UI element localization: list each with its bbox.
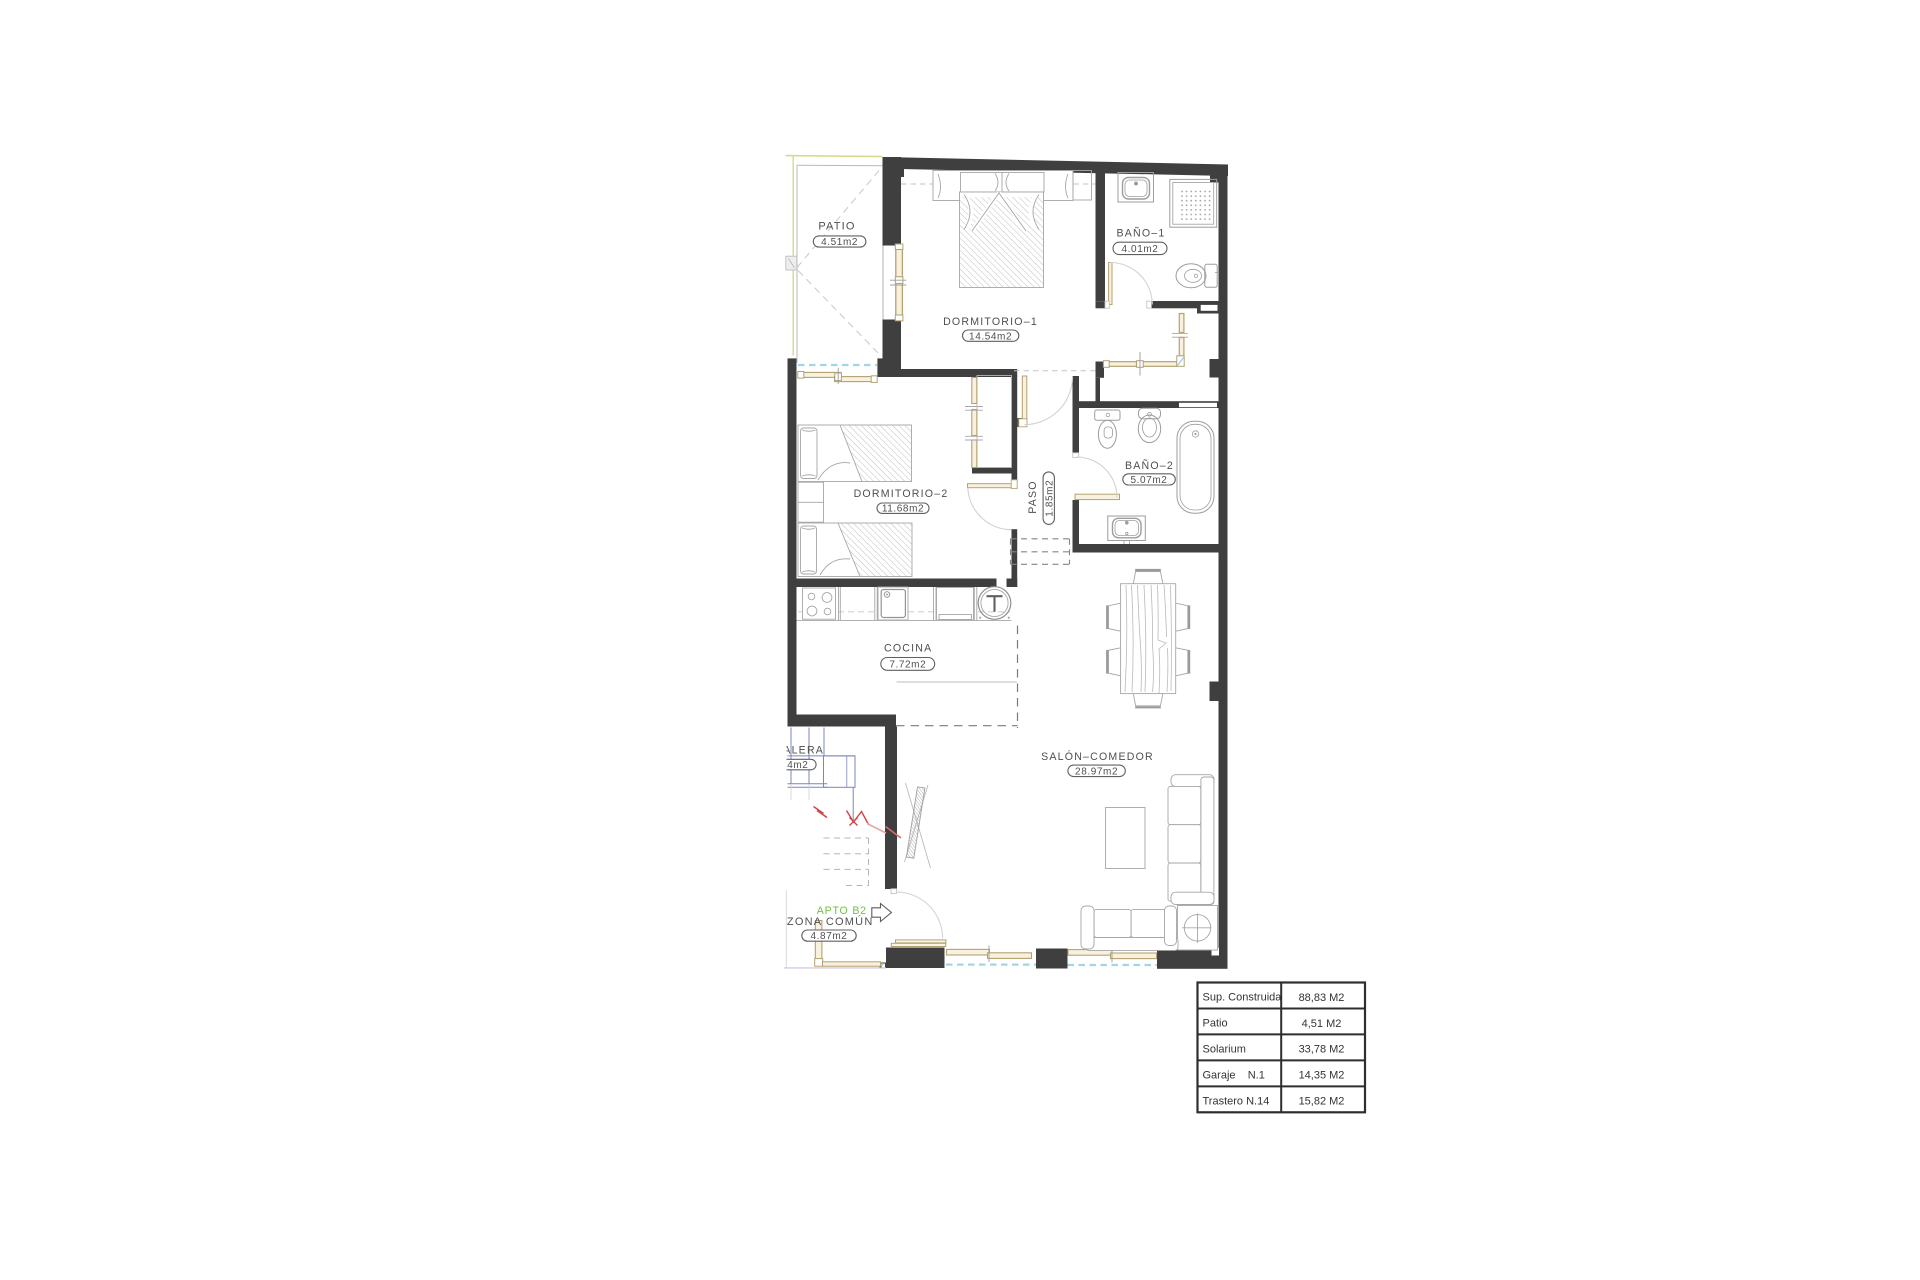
svg-text:1.85m2: 1.85m2: [1044, 480, 1055, 517]
svg-text:SALÓN–COMEDOR: SALÓN–COMEDOR: [1041, 750, 1154, 763]
svg-text:14,35 M2: 14,35 M2: [1299, 1069, 1345, 1081]
svg-text:Garaje N.1: Garaje N.1: [1203, 1069, 1265, 1081]
svg-text:BAÑO–2: BAÑO–2: [1125, 459, 1174, 472]
svg-text:4.01m2: 4.01m2: [1122, 244, 1159, 255]
svg-text:88,83 M2: 88,83 M2: [1299, 992, 1345, 1004]
svg-text:4.87m2: 4.87m2: [811, 931, 848, 942]
svg-text:PASO: PASO: [1027, 480, 1039, 513]
svg-text:Sup. Construida: Sup. Construida: [1203, 991, 1283, 1003]
svg-text:COCINA: COCINA: [884, 642, 932, 654]
svg-text:33,78 M2: 33,78 M2: [1299, 1043, 1345, 1055]
svg-text:Solarium: Solarium: [1203, 1043, 1246, 1055]
svg-text:DORMITORIO–1: DORMITORIO–1: [943, 316, 1038, 328]
svg-text:BAÑO–1: BAÑO–1: [1116, 227, 1165, 240]
svg-text:ZONA COMÚN: ZONA COMÚN: [787, 915, 874, 928]
svg-text:DORMITORIO–2: DORMITORIO–2: [854, 488, 949, 500]
svg-text:28.97m2: 28.97m2: [1075, 766, 1118, 777]
svg-text:4.51m2: 4.51m2: [821, 237, 858, 248]
svg-text:Trastero N.14: Trastero N.14: [1203, 1095, 1270, 1107]
svg-text:Patio: Patio: [1203, 1017, 1228, 1029]
svg-text:4,51 M2: 4,51 M2: [1302, 1018, 1342, 1030]
svg-text:5.07m2: 5.07m2: [1131, 475, 1168, 486]
svg-text:14.54m2: 14.54m2: [969, 331, 1012, 342]
svg-text:15,82 M2: 15,82 M2: [1299, 1095, 1345, 1107]
svg-text:11.68m2: 11.68m2: [882, 504, 924, 515]
svg-text:7.72m2: 7.72m2: [889, 660, 926, 671]
svg-text:PATIO: PATIO: [818, 221, 855, 233]
